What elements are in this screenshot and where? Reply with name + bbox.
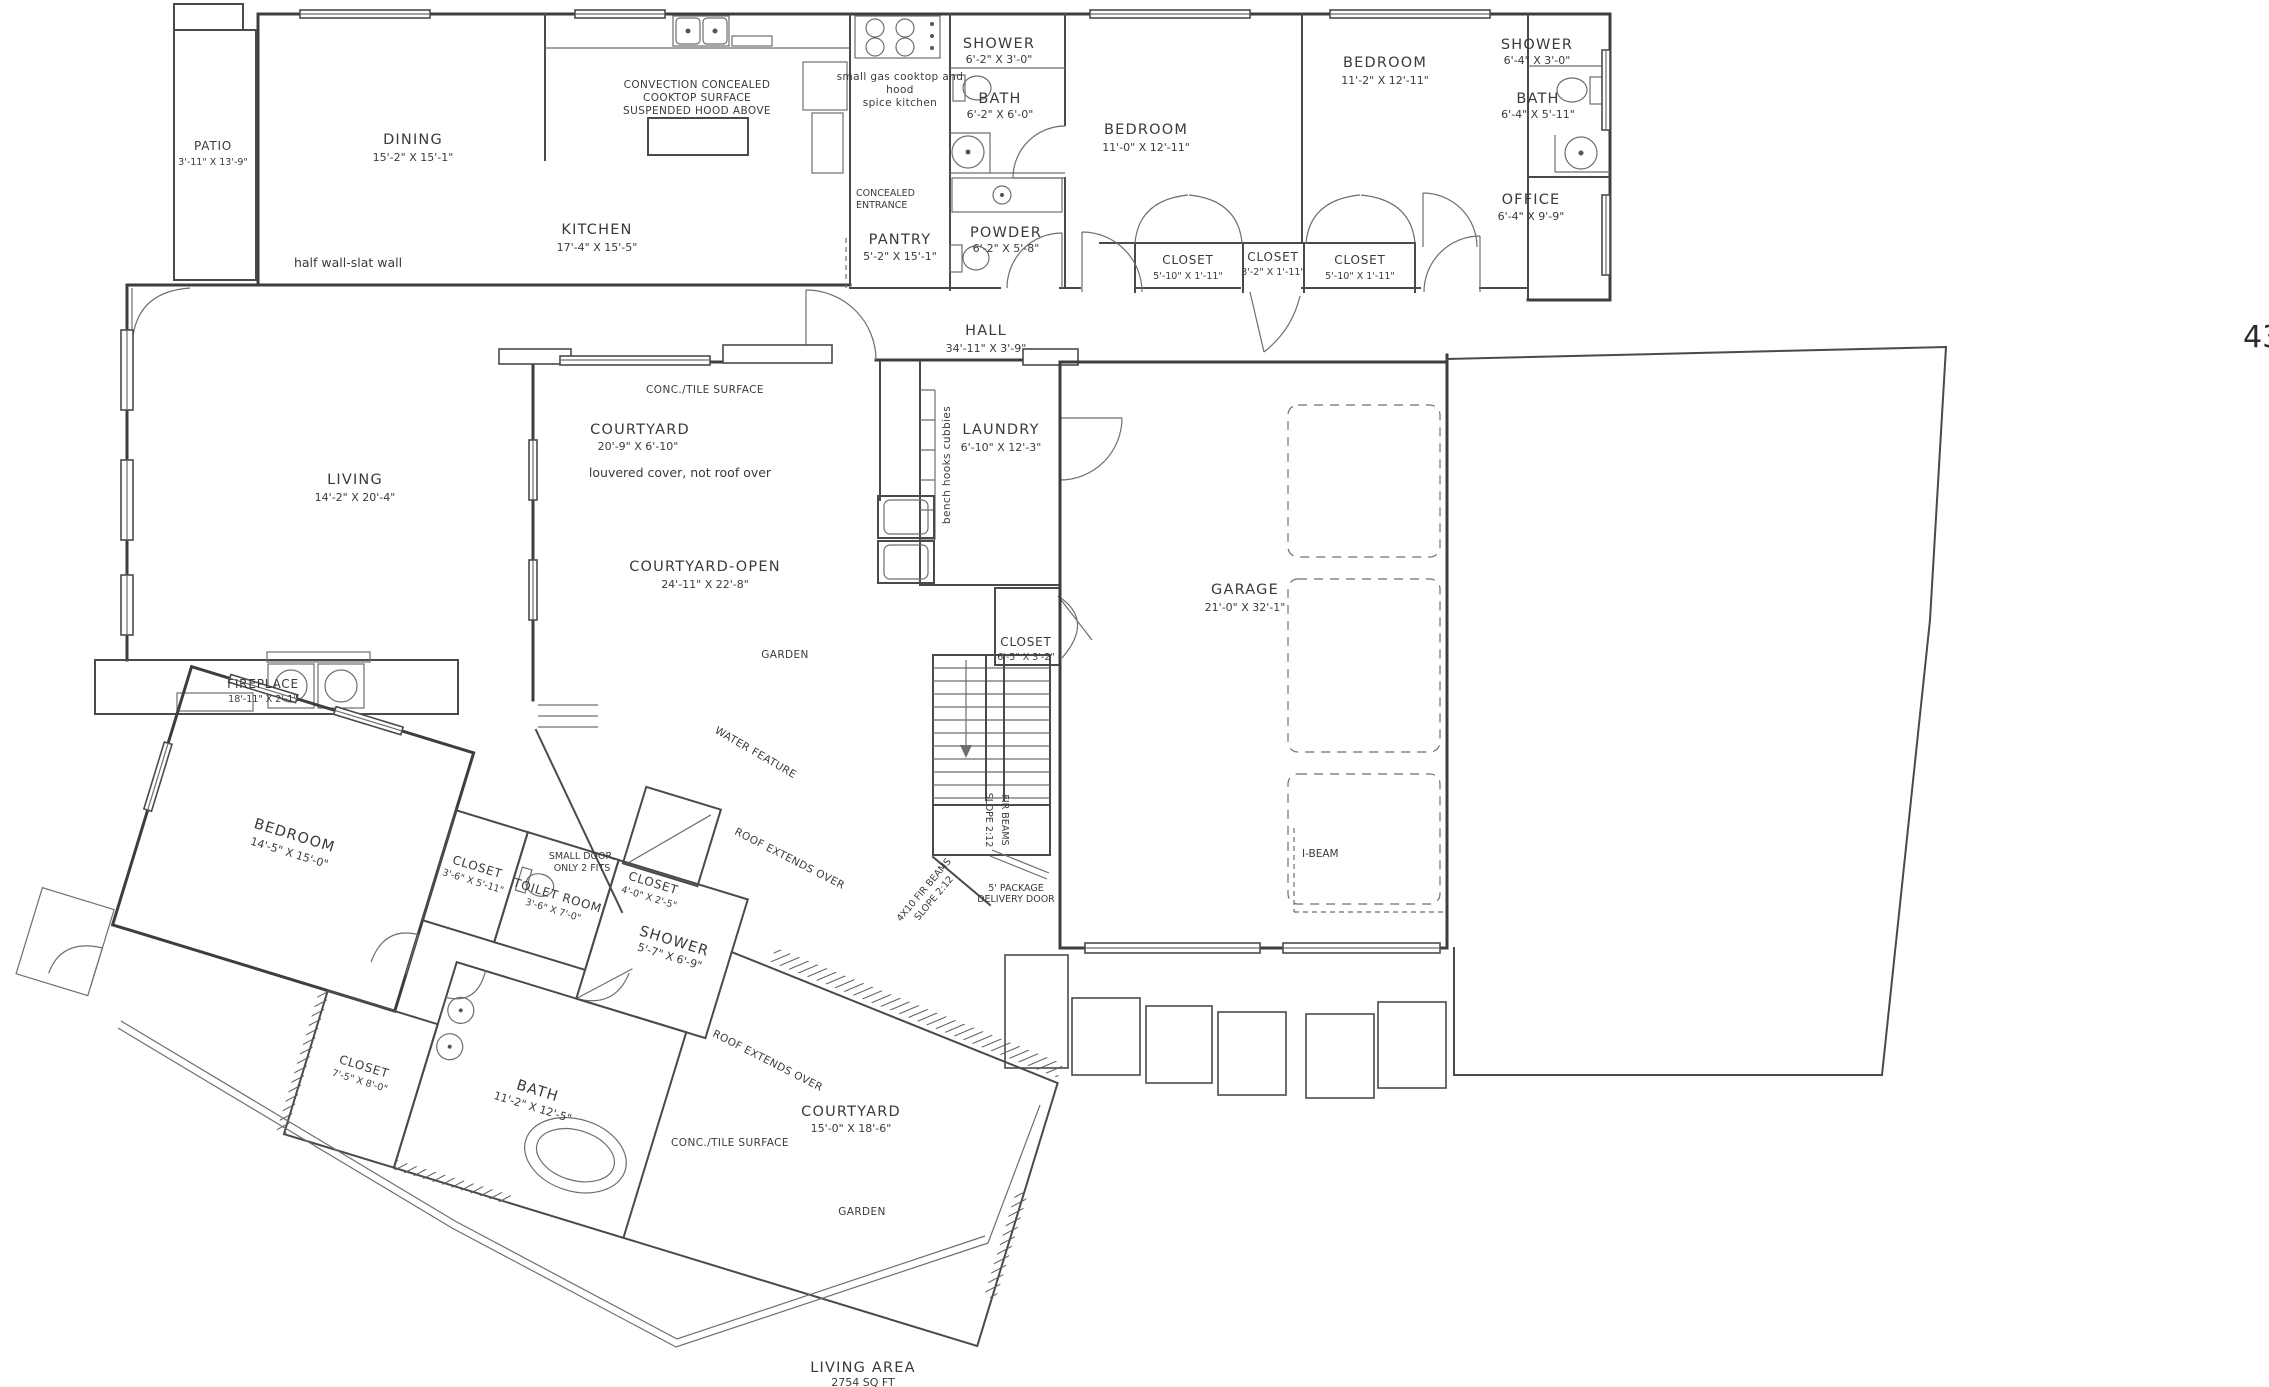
bath1-label: BATH (978, 91, 1021, 107)
paver-pad (1218, 1012, 1286, 1095)
living-area-value: 2754 SQ FT (831, 1376, 895, 1387)
bench-cubbies-note: bench hooks cubbies (941, 406, 953, 524)
shower2-label: SHOWER (1501, 37, 1573, 53)
courtyard-upper-dims: 20'-9" X 6'-10" (598, 440, 679, 453)
laundry-garage-door-arc (1060, 418, 1122, 480)
spice-note-2: hood (886, 84, 914, 96)
water-feature-note: WATER FEATURE (713, 725, 799, 781)
garage-label: GARAGE (1211, 582, 1279, 598)
fireplace-dims: 18'-11" X 2'-1" (228, 694, 298, 705)
floor-plan-canvas: BEDROOM 14'-5" X 15'-0" CLOSET 3'-6" X 5… (0, 0, 2269, 1387)
burner-icon (866, 38, 884, 56)
bedroom2-dims: 11'-2" X 12'-11" (1341, 74, 1429, 87)
kitchen-sink-counter (673, 16, 729, 46)
stair-arrow (960, 745, 972, 758)
paver-pad (1146, 1006, 1212, 1083)
i-beam-note: I-BEAM (1302, 848, 1339, 860)
laundry-label: LAUNDRY (962, 422, 1039, 438)
concealed-note-1: CONCEALED (856, 188, 915, 199)
fire-burner-icon (325, 670, 357, 702)
pantry-label: PANTRY (869, 232, 932, 248)
car-stall (1288, 405, 1440, 557)
bedroom2-door-arc (1424, 236, 1480, 292)
office-dims: 6'-4" X 9'-9" (1498, 210, 1565, 223)
hatched-wall (276, 988, 329, 1134)
fir-diag-note: 4X10 FIR BEAMS SLOPE 2:12 (895, 856, 964, 932)
shower2-dims: 6'-4" X 3'-0" (1504, 54, 1571, 67)
hall-door-arc (1250, 292, 1300, 352)
deck-outline (118, 1021, 1040, 1347)
corridor-door-arc (370, 924, 418, 975)
hall-label: HALL (965, 323, 1007, 339)
shower1-label: SHOWER (963, 36, 1035, 52)
closet-a-label: CLOSET (1162, 253, 1213, 267)
bedroom-deck (16, 888, 114, 996)
garden-upper-note: GARDEN (761, 649, 809, 661)
closet-stairs-label: CLOSET (1000, 635, 1051, 649)
svg-text:FIR BEAMS: FIR BEAMS (999, 794, 1010, 845)
garage (1060, 355, 1447, 953)
paver-pad (1306, 1014, 1374, 1098)
kitchen-label: KITCHEN (561, 222, 632, 238)
labels: PATIO 3'-11" X 13'-9" DINING 15'-2" X 15… (178, 36, 2269, 1387)
bedroom1-dims: 11'-0" X 12'-11" (1102, 141, 1190, 154)
living-door-arc (132, 288, 190, 350)
living-dims: 14'-2" X 20'-4" (315, 491, 396, 504)
kitchen-island (648, 118, 748, 155)
courtyard-open-dims: 24'-11" X 22'-8" (661, 578, 749, 591)
laundry-dims: 6'-10" X 12'-3" (961, 441, 1042, 454)
garage-dims: 21'-0" X 32'-1" (1205, 601, 1286, 614)
floor-plan-drawing: BEDROOM 14'-5" X 15'-0" CLOSET 3'-6" X 5… (0, 0, 2269, 1387)
shower1-dims: 6'-2" X 3'-0" (966, 53, 1033, 66)
small-door-note-2: ONLY 2 FITS (554, 863, 611, 874)
closet-a-dims: 5'-10" X 1'-11" (1153, 271, 1223, 282)
toilet-tank (1590, 77, 1603, 104)
car-stall (1288, 774, 1440, 904)
fir-beams-note: FIR BEAMS SLOPE 2:12 (983, 793, 1010, 848)
patio-outline (174, 30, 256, 280)
planter (723, 345, 832, 363)
hatched-wall (393, 1160, 511, 1205)
cooktop-note-1: CONVECTION CONCEALED (624, 79, 771, 91)
package-note-2: DELIVERY DOOR (977, 894, 1055, 905)
toilet-tank (950, 245, 962, 272)
bath1-dims: 6'-2" X 6'-0" (967, 108, 1034, 121)
closet-c-dims: 5'-10" X 1'-11" (1325, 271, 1395, 282)
toilet-bowl (1557, 78, 1587, 102)
sink-drain-left (686, 29, 691, 34)
dining-label: DINING (383, 132, 443, 148)
living-area-label: LIVING AREA (810, 1360, 916, 1376)
bath2-dims: 6'-4" X 5'-11" (1501, 108, 1575, 121)
steps (538, 705, 598, 727)
small-door-note-1: SMALL DOOR, (549, 851, 615, 862)
paver-pad (1378, 1002, 1446, 1088)
living-wing (95, 285, 458, 714)
patio-dims: 3'-11" X 13'-9" (178, 157, 248, 168)
bathtub (515, 1106, 636, 1205)
svg-text:SLOPE 2:12: SLOPE 2:12 (983, 793, 994, 848)
courtyard-open-label: COURTYARD-OPEN (629, 559, 781, 575)
louvered-note: louvered cover, not roof over (589, 465, 772, 480)
fireplace-label: FIREPLACE (227, 677, 299, 691)
stairs (933, 655, 1050, 805)
powder-vanity (952, 178, 1062, 212)
package-note-1: 5' PACKAGE (988, 883, 1044, 894)
screen-wall-hatch (984, 1191, 1028, 1300)
garden-lower-note: GARDEN (838, 1206, 886, 1218)
closet-stairs-dims: 6'-5" X 3'-2" (997, 652, 1055, 663)
pantry-dims: 5'-2" X 15'-1" (863, 250, 937, 263)
wardrobe-doors-arc (1306, 195, 1415, 243)
patio-planter (174, 4, 243, 30)
burner-icon (896, 19, 914, 37)
cooktop-note-3: SUSPENDED HOOD ABOVE (623, 105, 771, 117)
burner-icon (866, 19, 884, 37)
appliance (878, 541, 934, 583)
kitchen-dims: 17'-4" X 15'-5" (557, 241, 638, 254)
spice-note-3: spice kitchen (863, 97, 937, 109)
bedroom1-door-arc (1082, 232, 1142, 292)
half-wall-note: half wall-slat wall (294, 255, 402, 270)
sink-drain-right (713, 29, 718, 34)
deck-door-arc (49, 935, 103, 986)
page-number: 43 (2243, 320, 2269, 355)
office-label: OFFICE (1502, 192, 1561, 208)
wardrobe-doors-arc (1135, 195, 1242, 243)
hall-dims: 34'-11" X 3'-9" (946, 342, 1027, 355)
concealed-note-2: ENTRANCE (856, 200, 907, 211)
spice-note-1: small gas cooktop and (837, 71, 964, 83)
bedroom1-label: BEDROOM (1104, 122, 1188, 138)
closet-c-label: CLOSET (1334, 253, 1385, 267)
car-stall (1288, 579, 1440, 752)
appliance (878, 496, 934, 538)
roof-extends-lower-note: ROOF EXTENDS OVER (711, 1028, 825, 1094)
roof-extends-upper-note: ROOF EXTENDS OVER (733, 826, 847, 892)
bedroom2-label: BEDROOM (1343, 55, 1427, 71)
closet-door-arc (1058, 596, 1092, 658)
burner-icon (896, 38, 914, 56)
cooktop-note-2: COOKTOP SURFACE (643, 92, 751, 104)
master-wing: BEDROOM 14'-5" X 15'-0" CLOSET 3'-6" X 5… (0, 627, 1109, 1350)
courtyard-lower-dims: 15'-0" X 18'-6" (811, 1122, 892, 1135)
bath2-label: BATH (1516, 91, 1559, 107)
bath-door-arc (1013, 126, 1065, 178)
conc-tile-upper-note: CONC./TILE SURFACE (646, 384, 764, 396)
powder-dims: 6'-2" X 5'-8" (973, 242, 1040, 255)
dining-dims: 15'-2" X 15'-1" (373, 151, 454, 164)
office-door-arc (1423, 193, 1477, 247)
closet-b-dims: 3'-2" X 1'-11" (1241, 267, 1305, 278)
i-beam-line (1294, 828, 1447, 912)
patio-label: PATIO (194, 139, 232, 153)
paver-pad (1072, 998, 1140, 1075)
conc-tile-lower-note: CONC./TILE SURFACE (671, 1137, 789, 1149)
shower-door-arc (576, 956, 632, 1012)
powder-label: POWDER (970, 225, 1042, 241)
closet-b-label: CLOSET (1247, 250, 1298, 264)
window-marks (121, 330, 133, 635)
living-label: LIVING (327, 472, 383, 488)
site-boundary (1005, 347, 1946, 1098)
courtyard-upper-label: COURTYARD (590, 422, 690, 438)
courtyard-lower-label: COURTYARD (801, 1104, 901, 1120)
